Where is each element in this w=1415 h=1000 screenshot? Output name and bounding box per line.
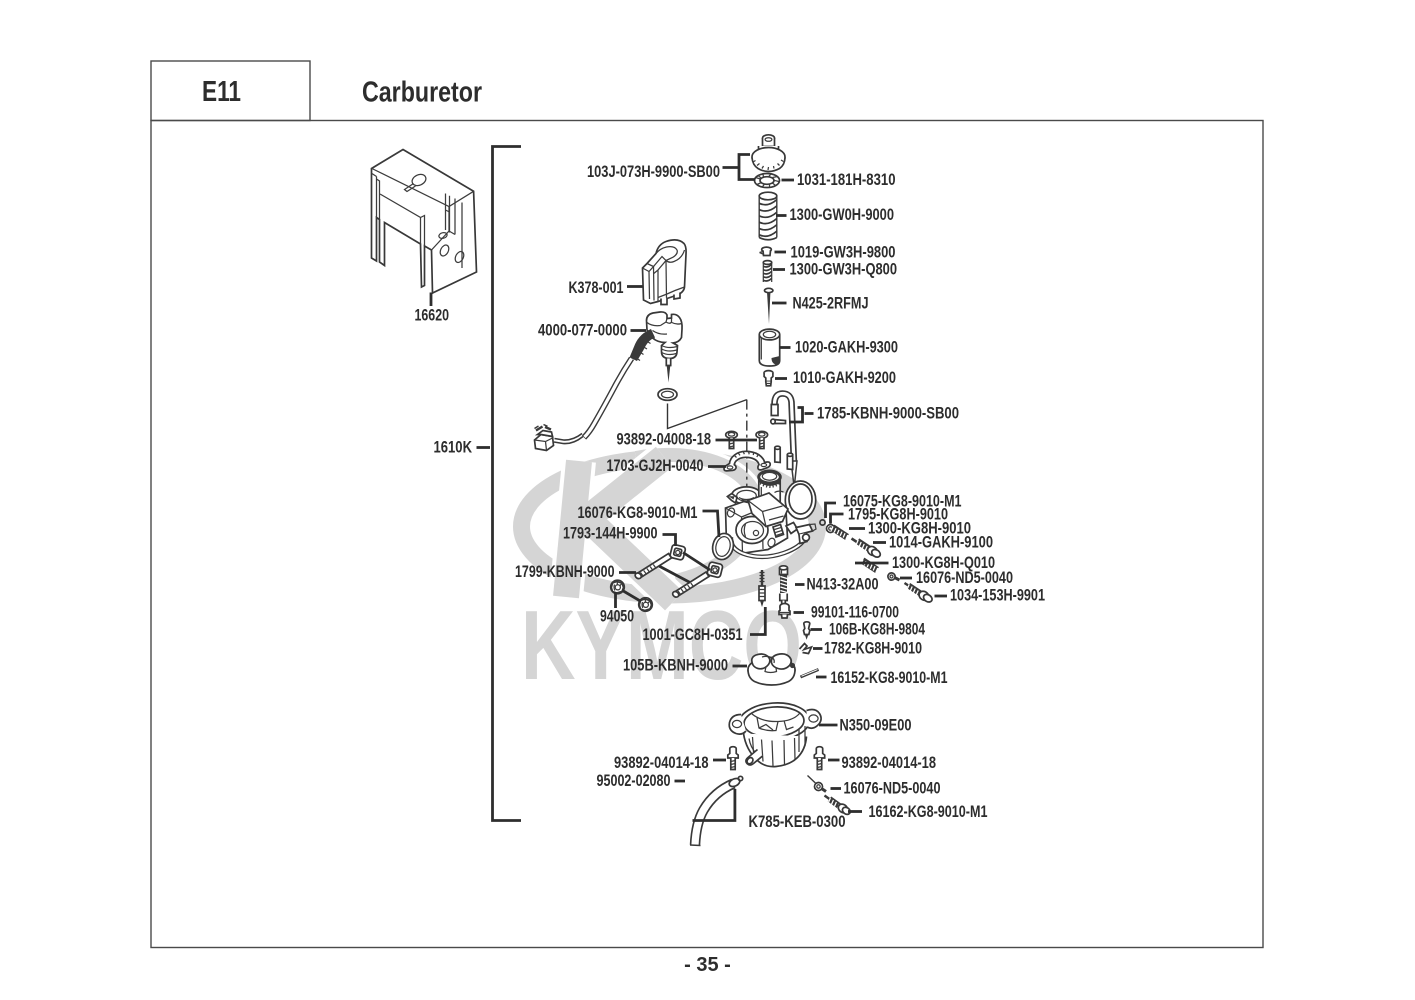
svg-text:103J-073H-9900-SB00: 103J-073H-9900-SB00 [587, 163, 720, 181]
svg-text:1785-KBNH-9000-SB00: 1785-KBNH-9000-SB00 [817, 405, 959, 423]
svg-text:1031-181H-8310: 1031-181H-8310 [797, 171, 896, 189]
svg-text:1034-153H-9901: 1034-153H-9901 [950, 587, 1045, 605]
svg-text:1610K: 1610K [434, 439, 473, 457]
svg-text:16076-ND5-0040: 16076-ND5-0040 [916, 569, 1013, 587]
svg-text:16076-ND5-0040: 16076-ND5-0040 [844, 780, 941, 798]
svg-text:Carburetor: Carburetor [362, 77, 482, 109]
svg-text:1300-GW3H-Q800: 1300-GW3H-Q800 [790, 261, 898, 279]
svg-text:1799-KBNH-9000: 1799-KBNH-9000 [515, 563, 615, 581]
svg-text:106B-KG8H-9804: 106B-KG8H-9804 [829, 621, 926, 639]
svg-text:16076-KG8-9010-M1: 16076-KG8-9010-M1 [578, 504, 698, 522]
svg-text:105B-KBNH-9000: 105B-KBNH-9000 [623, 657, 728, 675]
svg-text:K378-001: K378-001 [569, 279, 624, 297]
svg-text:4000-077-0000: 4000-077-0000 [538, 322, 627, 340]
svg-text:95002-02080: 95002-02080 [597, 772, 671, 790]
svg-text:1300-GW0H-9000: 1300-GW0H-9000 [790, 206, 895, 224]
svg-text:E11: E11 [202, 76, 241, 108]
svg-text:- 35 -: - 35 - [684, 954, 731, 976]
svg-text:N413-32A00: N413-32A00 [807, 576, 879, 594]
svg-text:1793-144H-9900: 1793-144H-9900 [563, 525, 658, 543]
svg-text:K785-KEB-0300: K785-KEB-0300 [749, 813, 846, 831]
svg-text:16620: 16620 [415, 307, 450, 325]
svg-text:N350-09E00: N350-09E00 [840, 717, 912, 735]
svg-text:1014-GAKH-9100: 1014-GAKH-9100 [889, 534, 993, 552]
svg-text:93892-04014-18: 93892-04014-18 [842, 754, 937, 772]
svg-text:1782-KG8H-9010: 1782-KG8H-9010 [824, 640, 922, 658]
svg-text:16152-KG8-9010-M1: 16152-KG8-9010-M1 [831, 669, 948, 687]
svg-text:1001-GC8H-0351: 1001-GC8H-0351 [643, 626, 743, 644]
svg-text:99101-116-0700: 99101-116-0700 [811, 604, 899, 622]
svg-text:94050: 94050 [600, 608, 634, 626]
svg-text:93892-04008-18: 93892-04008-18 [617, 431, 712, 449]
svg-text:1010-GAKH-9200: 1010-GAKH-9200 [793, 369, 896, 387]
svg-text:16162-KG8-9010-M1: 16162-KG8-9010-M1 [869, 803, 988, 821]
svg-text:1019-GW3H-9800: 1019-GW3H-9800 [791, 244, 896, 262]
svg-text:1020-GAKH-9300: 1020-GAKH-9300 [795, 339, 898, 357]
svg-text:93892-04014-18: 93892-04014-18 [614, 754, 709, 772]
svg-text:N425-2RFMJ: N425-2RFMJ [793, 295, 869, 313]
svg-text:1703-GJ2H-0040: 1703-GJ2H-0040 [607, 457, 704, 475]
